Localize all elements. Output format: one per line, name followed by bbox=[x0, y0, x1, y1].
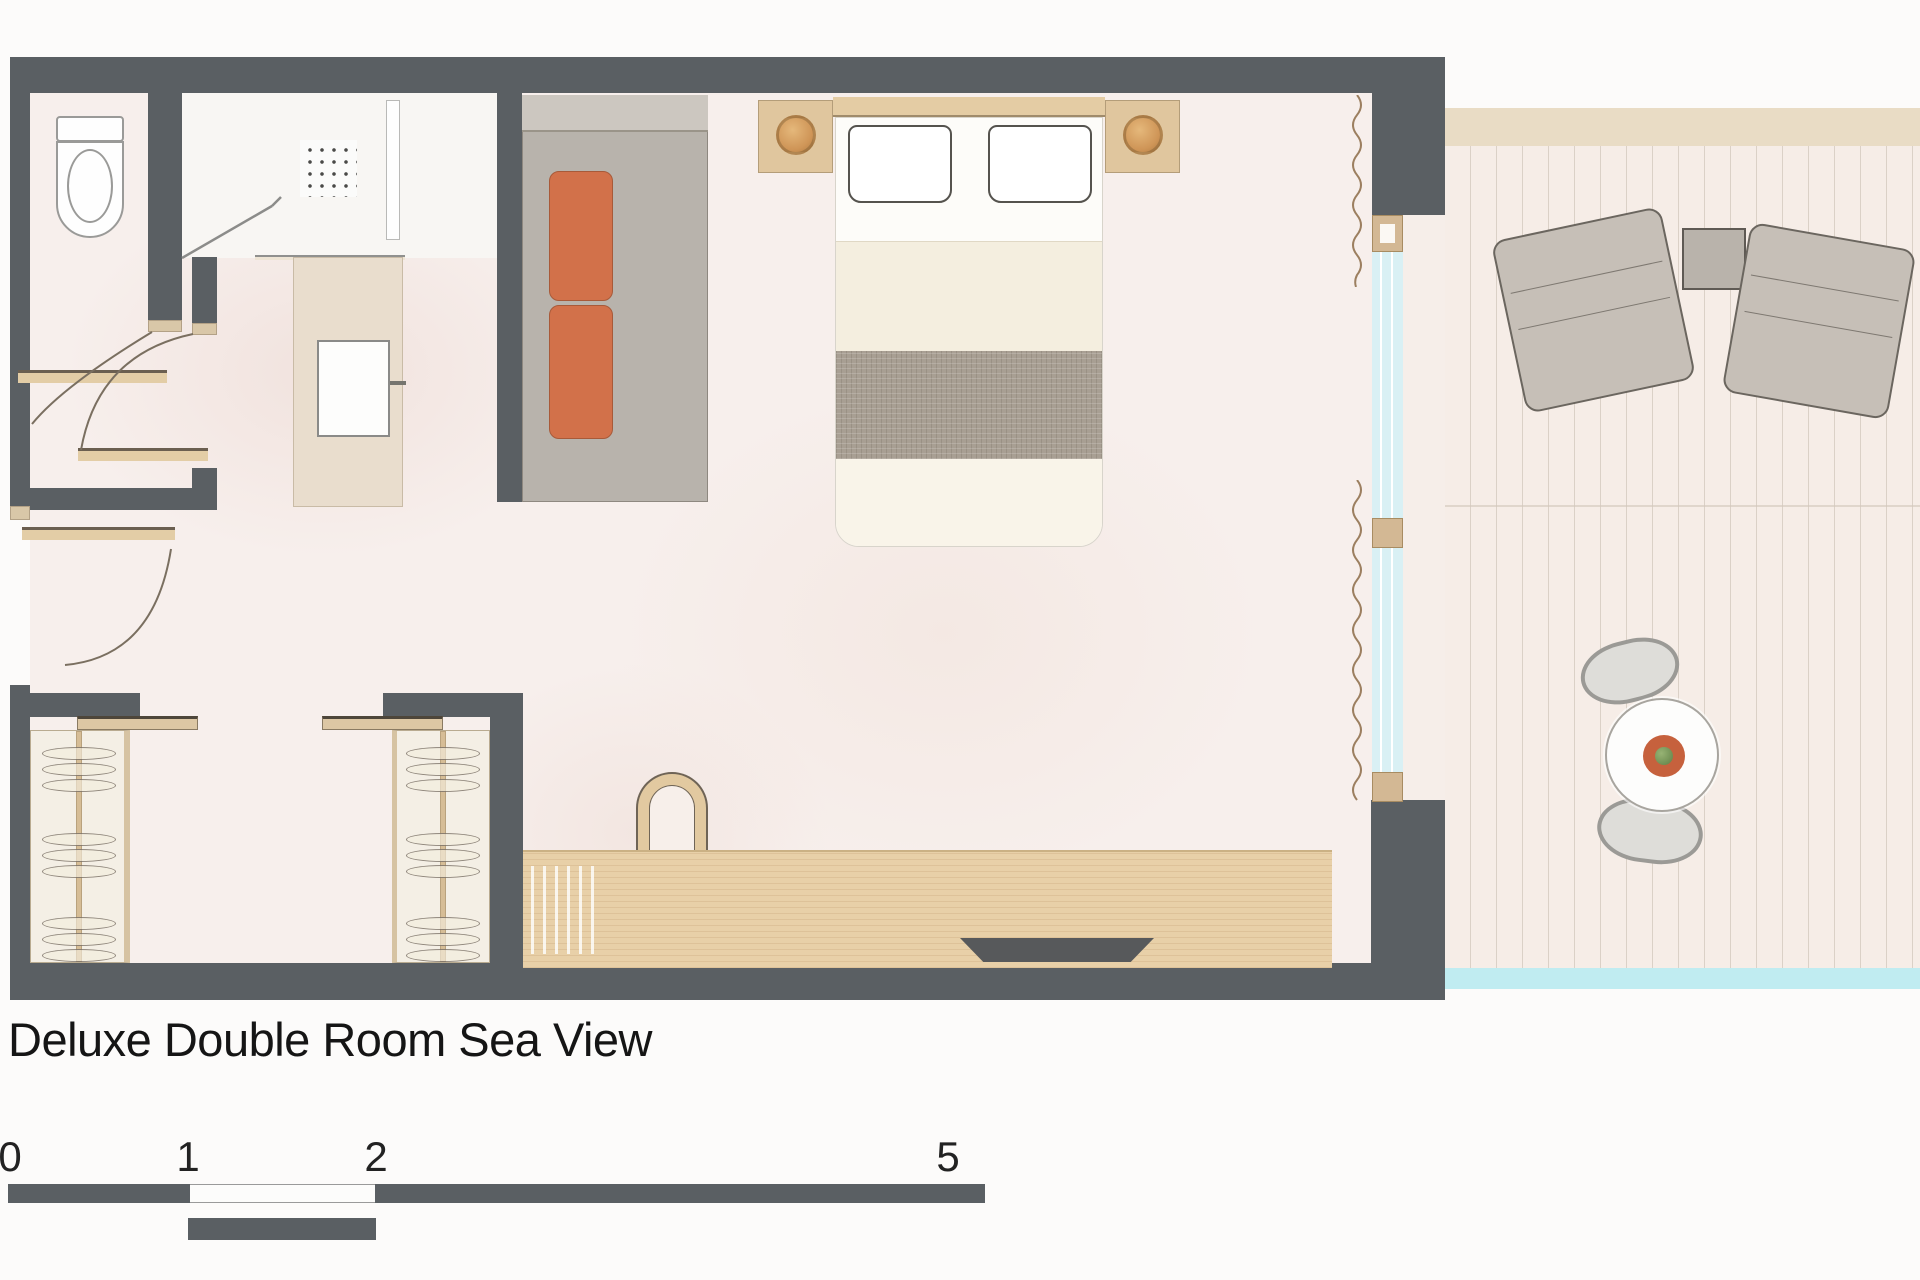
sofa-back-band bbox=[522, 95, 708, 132]
hanger-icon bbox=[406, 917, 480, 930]
scale-label-2: 2 bbox=[364, 1133, 387, 1181]
wall-cap bbox=[148, 320, 182, 332]
wall-left-upper bbox=[10, 57, 30, 519]
scale-label-0: 0 bbox=[0, 1133, 22, 1181]
wardrobe-shelf-right bbox=[322, 716, 443, 730]
window-sill-bottom bbox=[1372, 772, 1403, 802]
wall-inner-L-stub bbox=[192, 468, 217, 492]
wall-top bbox=[10, 57, 1445, 93]
hanger-icon bbox=[42, 933, 116, 946]
wardrobe-shelf-left bbox=[77, 716, 198, 730]
hanger-icon bbox=[42, 917, 116, 930]
wall-left-lower bbox=[10, 685, 30, 1000]
window-glass-lower bbox=[1372, 548, 1403, 772]
wall-cap bbox=[192, 323, 217, 335]
scale-label-5: 5 bbox=[936, 1133, 959, 1181]
wardrobe-left bbox=[30, 730, 130, 963]
vanity-sink bbox=[317, 340, 390, 437]
balcony-top-band bbox=[1445, 108, 1920, 147]
wall-toilet-divider bbox=[148, 93, 182, 320]
desk-chair bbox=[636, 772, 708, 856]
hanger-icon bbox=[42, 865, 116, 878]
hanger-icon bbox=[406, 865, 480, 878]
hanger-icon bbox=[406, 949, 480, 962]
wall-entry-divider bbox=[192, 257, 217, 323]
bathroom-door-leaf bbox=[78, 448, 208, 461]
plan-title: Deluxe Double Room Sea View bbox=[8, 1012, 652, 1067]
toilet-door-leaf bbox=[18, 370, 167, 383]
scale-bar-segment bbox=[375, 1184, 985, 1203]
hanger-icon bbox=[42, 779, 116, 792]
wall-wardrobe-right-side bbox=[490, 717, 523, 963]
shower-drain bbox=[300, 140, 357, 197]
bed-blanket bbox=[836, 241, 1102, 352]
sea-strip bbox=[1445, 968, 1920, 989]
hanger-icon bbox=[406, 763, 480, 776]
lounge-chair-seam bbox=[1750, 275, 1899, 302]
lamp-left-icon bbox=[776, 115, 816, 155]
plant-decor bbox=[1655, 747, 1673, 765]
scale-label-1: 1 bbox=[176, 1133, 199, 1181]
bed-footer bbox=[836, 459, 1102, 547]
wardrobe-right bbox=[392, 730, 490, 963]
hanger-icon bbox=[42, 949, 116, 962]
sofa-cushion-bottom bbox=[549, 305, 613, 439]
balcony-side-table bbox=[1682, 228, 1746, 290]
hanger-icon bbox=[406, 933, 480, 946]
hanger-icon bbox=[42, 833, 116, 846]
wall-cap bbox=[10, 506, 30, 520]
sofa-cushion-top bbox=[549, 171, 613, 301]
lounge-chair-right bbox=[1721, 222, 1916, 421]
wall-sofa-back bbox=[497, 93, 522, 502]
window-frame-top bbox=[1372, 215, 1403, 252]
double-bed bbox=[835, 117, 1103, 547]
bed-throw bbox=[836, 351, 1102, 459]
desk-chair-seat bbox=[649, 785, 695, 856]
window-glass-upper bbox=[1372, 252, 1403, 518]
lounge-chair-seam bbox=[1510, 260, 1662, 293]
toilet-tank bbox=[56, 116, 124, 142]
pillow-right bbox=[988, 125, 1092, 203]
hanger-icon bbox=[42, 849, 116, 862]
shower-glass-panel bbox=[386, 100, 400, 240]
lounge-chair-seam bbox=[1518, 297, 1670, 330]
hanger-icon bbox=[406, 779, 480, 792]
deck-seam bbox=[1445, 505, 1920, 507]
sofa-daybed bbox=[522, 95, 708, 502]
wall-wardrobe-right-stub bbox=[383, 693, 523, 717]
pillow-left bbox=[848, 125, 952, 203]
wall-bottom-right-block bbox=[1371, 800, 1445, 1000]
desk-tray bbox=[960, 938, 1154, 962]
window-transom bbox=[1372, 518, 1403, 548]
entry-door-leaf bbox=[22, 527, 175, 540]
hanger-icon bbox=[406, 849, 480, 862]
faucet-icon bbox=[390, 381, 406, 385]
scale-bar-segment-offset bbox=[188, 1218, 376, 1240]
desk-console bbox=[523, 850, 1332, 968]
hanger-icon bbox=[42, 763, 116, 776]
floor-plan: Deluxe Double Room Sea View 0 1 2 5 bbox=[0, 0, 1920, 1280]
outdoor-gap bbox=[1403, 215, 1445, 800]
hanger-icon bbox=[406, 747, 480, 760]
lounge-chair-left bbox=[1491, 206, 1697, 414]
luggage-rack-slats bbox=[531, 866, 595, 954]
wall-top-right-stub bbox=[1372, 93, 1445, 215]
hanger-icon bbox=[42, 747, 116, 760]
headboard bbox=[833, 97, 1105, 117]
scale-bar-segment bbox=[8, 1184, 190, 1203]
wall-bottom bbox=[10, 963, 1445, 1000]
hanger-icon bbox=[406, 833, 480, 846]
wall-wardrobe-left-stub bbox=[30, 693, 140, 717]
lamp-right-icon bbox=[1123, 115, 1163, 155]
toilet-bowl bbox=[67, 149, 113, 223]
wall-inner-L bbox=[28, 488, 217, 510]
balcony-round-table bbox=[1605, 698, 1719, 812]
window-frame-notch bbox=[1380, 224, 1395, 243]
lounge-chair-seam bbox=[1744, 311, 1893, 338]
